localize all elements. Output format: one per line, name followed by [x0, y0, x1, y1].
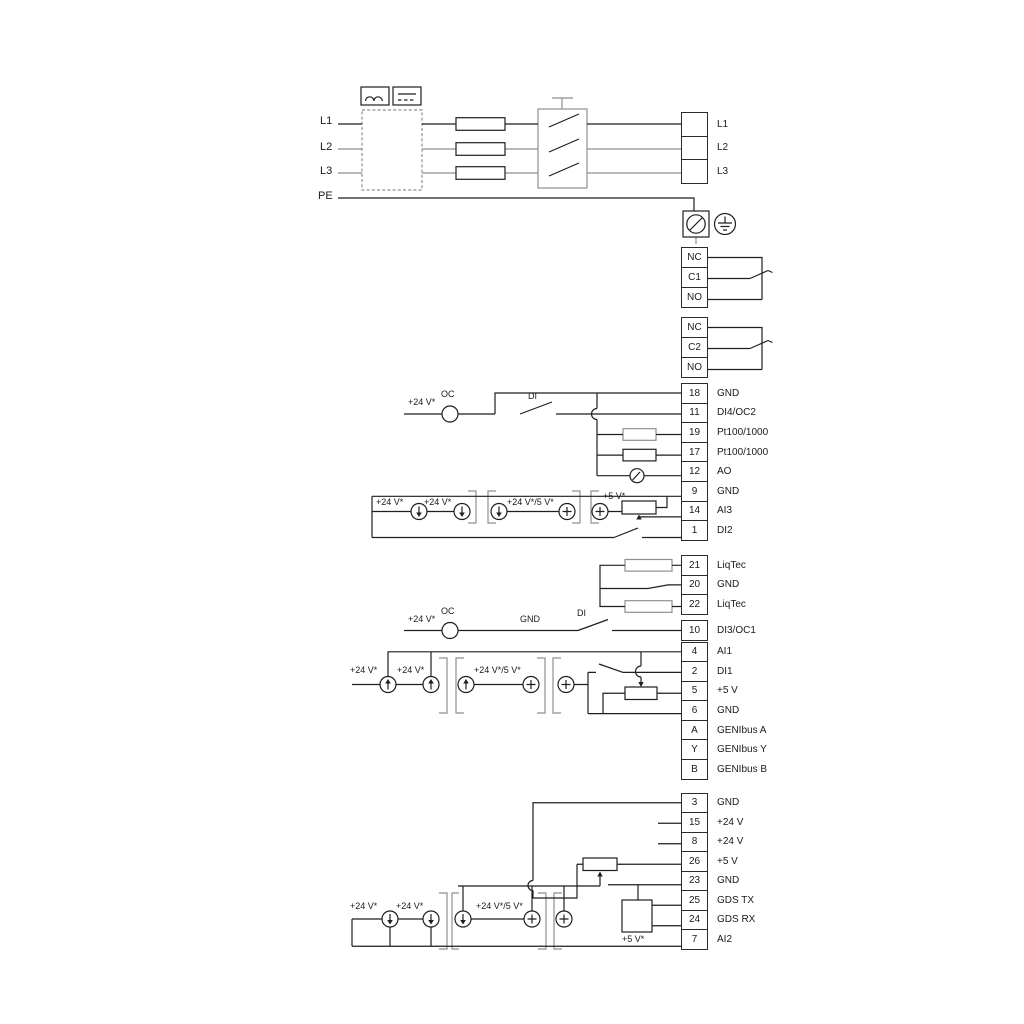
voltage-source-icon	[524, 911, 540, 927]
supply-label: +5 V*	[622, 934, 644, 944]
fuse-icon	[456, 118, 505, 131]
relay2-terminal-block: NC C2 NO	[681, 317, 708, 378]
terminal-cell: 3	[681, 793, 708, 814]
resistor-icon	[623, 449, 656, 461]
wire	[636, 652, 642, 682]
terminal-cell: 22	[681, 594, 708, 615]
terminal-cell: 12	[681, 461, 708, 482]
terminal-row: L1	[681, 112, 728, 137]
terminal-cell: 26	[681, 851, 708, 872]
current-source-icon	[455, 911, 471, 927]
supply-label: +24 V*/5 V*	[507, 497, 554, 507]
potentiometer-icon	[625, 687, 657, 700]
current-source-icon	[454, 504, 470, 520]
oc-output-icon	[442, 623, 458, 639]
terminal-cell: A	[681, 720, 708, 741]
earth-ground-icon	[718, 217, 732, 231]
terminal-block-power-out: L1 L2 L3	[681, 112, 728, 184]
mains-label-pe: PE	[318, 190, 333, 202]
mains-label-l1: L1	[320, 115, 332, 127]
switch-icon	[599, 664, 623, 672]
terminal-cell: 18	[681, 383, 708, 404]
ac-symbol-box	[361, 87, 389, 105]
gds-sensor-box	[622, 900, 652, 932]
gnd-wire-label: GND	[520, 614, 540, 624]
supply-label: +24 V*/5 V*	[476, 901, 523, 911]
liqtec-terminal-block: 21LiqTec 20GND 22LiqTec	[681, 555, 746, 615]
current-source-icon	[423, 677, 439, 693]
terminal-label: GENIbus A	[717, 725, 766, 736]
terminal-label: GENIbus Y	[717, 744, 767, 755]
terminal-label: DI1	[717, 666, 733, 677]
terminal-label: L1	[717, 119, 728, 130]
wiring-diagram: L1 L2 L3 PE L1 L2 L3 NC C1 NO NC C2 NO 1…	[0, 0, 1024, 1024]
terminal-label: GND	[717, 797, 739, 808]
supply-label: +24 V*	[350, 901, 377, 911]
voltage-source-icon	[556, 911, 572, 927]
disconnect-handle	[552, 98, 573, 109]
ac-symbol-icon	[366, 97, 383, 101]
terminal-label: GND	[717, 705, 739, 716]
oc-output-icon	[442, 406, 458, 422]
di-label: DI	[528, 391, 537, 401]
io-terminal-block-2: 4AI1 2DI1 5+5 V 6GND AGENIbus A YGENIbus…	[681, 642, 767, 780]
terminal-label: +5 V	[717, 685, 738, 696]
relay1-terminal-block: NC C1 NO	[681, 247, 708, 308]
wire	[608, 885, 681, 900]
gray-wires	[338, 98, 696, 949]
supply-label: +5 V*	[603, 491, 625, 501]
terminal-cell: 25	[681, 890, 708, 911]
wire	[588, 693, 681, 713]
terminal-cell: 21	[681, 555, 708, 576]
terminal-label: DI2	[717, 525, 733, 536]
switch-icon	[614, 528, 638, 538]
terminal-cell: C2	[681, 337, 708, 358]
terminal-cell	[681, 112, 708, 137]
terminal-cell: B	[681, 759, 708, 780]
terminal-label: GDS RX	[717, 914, 755, 925]
wiring-layer	[0, 0, 1024, 1024]
relay2-contact-icon	[708, 328, 773, 370]
oc-label: OC	[441, 389, 455, 399]
di3-terminal-block: 10DI3/OC1	[681, 620, 756, 641]
wiper-arrow-icon	[597, 872, 602, 877]
terminal-label: LiqTec	[717, 560, 746, 571]
terminal-cell: NC	[681, 317, 708, 338]
supply-label: +24 V*	[396, 901, 423, 911]
voltage-source-icon	[523, 677, 539, 693]
resistor-icon	[623, 429, 656, 441]
terminal-cell: 6	[681, 700, 708, 721]
terminal-cell: NO	[681, 287, 708, 308]
terminal-cell: 8	[681, 832, 708, 853]
terminal-label: DI3/OC1	[717, 625, 756, 636]
current-source-icon	[423, 911, 439, 927]
supply-label: +24 V*	[408, 614, 435, 624]
terminal-label: AI2	[717, 934, 732, 945]
supply-label: +24 V*	[424, 497, 451, 507]
wire	[600, 864, 681, 886]
resistor-icon	[625, 601, 672, 613]
terminal-label: Pt100/1000	[717, 427, 768, 438]
resistor-icon	[625, 560, 672, 572]
terminal-cell: 4	[681, 642, 708, 663]
terminal-cell: Y	[681, 739, 708, 760]
terminal-cell: 10	[681, 620, 708, 641]
di-label: DI	[577, 608, 586, 618]
terminal-cell: C1	[681, 267, 708, 288]
terminal-row: L2	[681, 136, 728, 161]
terminal-cell: 23	[681, 871, 708, 892]
potentiometer-icon	[583, 858, 617, 871]
wire	[652, 905, 681, 926]
terminal-cell: 19	[681, 422, 708, 443]
io-terminal-block-1: 18GND 11DI4/OC2 19Pt100/1000 17Pt100/100…	[681, 383, 768, 541]
terminal-label: Pt100/1000	[717, 447, 768, 458]
terminal-label: GND	[717, 388, 739, 399]
terminal-row: L3	[681, 159, 728, 184]
current-source-icon	[380, 677, 396, 693]
terminal-label: GND	[717, 486, 739, 497]
terminal-cell	[681, 159, 708, 184]
supply-label: +24 V*/5 V*	[474, 665, 521, 675]
terminal-cell: 11	[681, 403, 708, 424]
terminal-label: GDS TX	[717, 895, 754, 906]
terminal-label: LiqTec	[717, 599, 746, 610]
fuse-icon	[456, 167, 505, 180]
terminal-cell: 15	[681, 812, 708, 833]
terminal-label: AI3	[717, 505, 732, 516]
terminal-cell: 5	[681, 681, 708, 702]
terminal-cell: 20	[681, 575, 708, 596]
wire-pe	[338, 198, 694, 211]
voltage-source-icon	[592, 504, 608, 520]
oc-label: OC	[441, 606, 455, 616]
terminal-cell: 24	[681, 910, 708, 931]
pe-terminal-icon	[690, 218, 703, 231]
current-source-icon	[458, 677, 474, 693]
terminal-label: GND	[717, 579, 739, 590]
terminal-cell: 1	[681, 520, 708, 541]
switch-icon	[520, 402, 552, 414]
switch-icon	[578, 620, 608, 631]
terminal-label: AI1	[717, 646, 732, 657]
fuse-icon	[456, 143, 505, 156]
terminal-label: +24 V	[717, 836, 743, 847]
voltage-source-icon	[559, 504, 575, 520]
arrowheads	[597, 471, 643, 877]
terminal-cell: 9	[681, 481, 708, 502]
terminal-label: GND	[717, 875, 739, 886]
terminal-cell: 14	[681, 501, 708, 522]
emc-filter-box	[362, 110, 422, 190]
analog-output-meter-icon	[630, 469, 644, 483]
terminal-label: AO	[717, 466, 731, 477]
io-terminal-block-3: 3GND 15+24 V 8+24 V 26+5 V 23GND 25GDS T…	[681, 793, 755, 950]
voltage-source-icon	[558, 677, 574, 693]
mains-label-l3: L3	[320, 165, 332, 177]
terminal-cell: NC	[681, 247, 708, 268]
relay1-contact-icon	[708, 258, 773, 300]
terminal-cell: NO	[681, 357, 708, 378]
current-source-icon	[382, 911, 398, 927]
terminal-cell: 17	[681, 442, 708, 463]
wiper-arrow-icon	[638, 682, 643, 687]
terminal-label: +24 V	[717, 817, 743, 828]
supply-label: +24 V*	[376, 497, 403, 507]
disconnect-contacts	[549, 114, 579, 176]
wire	[592, 393, 598, 476]
wire	[658, 823, 681, 844]
terminal-label: DI4/OC2	[717, 407, 756, 418]
supply-label: +24 V*	[350, 665, 377, 675]
potentiometer-icon	[622, 501, 656, 514]
terminal-label: GENIbus B	[717, 764, 767, 775]
wire	[528, 803, 681, 898]
terminal-cell: 7	[681, 929, 708, 950]
dc-symbol-box	[393, 87, 421, 105]
mains-label-l2: L2	[320, 141, 332, 153]
terminal-label: L3	[717, 166, 728, 177]
terminal-cell	[681, 136, 708, 161]
terminal-label: L2	[717, 142, 728, 153]
terminal-label: +5 V	[717, 856, 738, 867]
supply-label: +24 V*	[397, 665, 424, 675]
supply-label: +24 V*	[408, 397, 435, 407]
terminal-cell: 2	[681, 661, 708, 682]
current-source-icon	[491, 504, 507, 520]
